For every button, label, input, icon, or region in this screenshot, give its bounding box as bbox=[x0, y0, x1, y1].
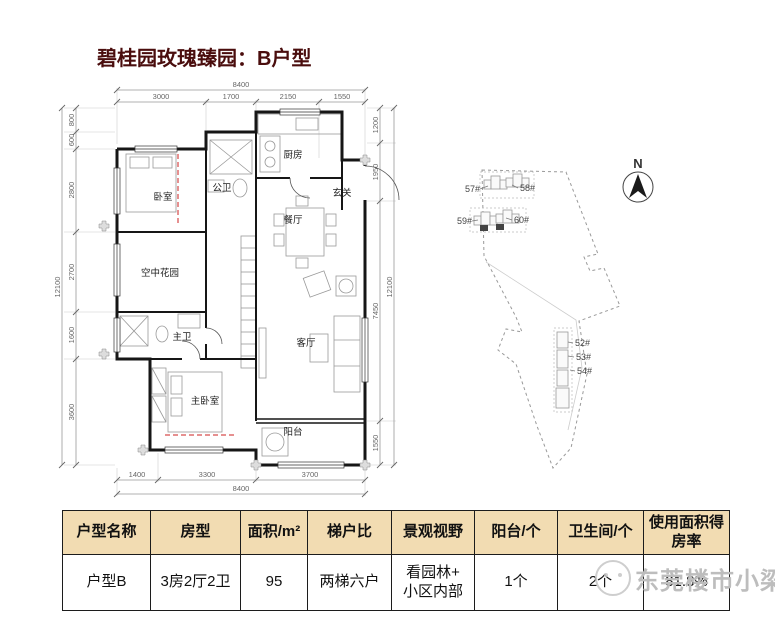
building-label-60: 60# bbox=[514, 215, 529, 225]
dim-top-total: 8400 bbox=[233, 80, 250, 89]
room-label-sky-garden: 空中花园 bbox=[141, 267, 179, 279]
dim-left-2: 2800 bbox=[67, 182, 76, 199]
watermark-text: 东莞楼市小梁 bbox=[635, 561, 775, 596]
watermark: 东莞楼市小梁 bbox=[595, 560, 775, 596]
dim-top-3: 1550 bbox=[334, 92, 351, 101]
cell-balcony: 1个 bbox=[475, 555, 558, 611]
room-label-living: 客厅 bbox=[296, 337, 316, 349]
dim-left-total: 12100 bbox=[53, 277, 62, 298]
header-unit-name: 户型名称 bbox=[63, 511, 151, 555]
floor-plan-drawing: 8400 3000 1700 2150 1550 1400 3300 3700 … bbox=[40, 78, 440, 510]
dim-bottom-1: 3300 bbox=[199, 470, 216, 479]
room-label-master-bath: 主卫 bbox=[172, 331, 192, 343]
dim-left-0: 800 bbox=[67, 114, 76, 127]
dim-left-1: 600 bbox=[67, 134, 76, 147]
dim-top-0: 3000 bbox=[153, 92, 170, 101]
header-usable-ratio: 使用面积得房率 bbox=[644, 511, 730, 555]
header-balcony: 阳台/个 bbox=[475, 511, 558, 555]
building-label-54: 54# bbox=[577, 366, 592, 376]
building-label-53: 53# bbox=[576, 352, 591, 362]
room-label-balcony: 阳台 bbox=[283, 426, 302, 438]
dim-top-2: 2150 bbox=[280, 92, 297, 101]
watermark-logo-icon bbox=[595, 560, 631, 596]
dim-left-5: 3600 bbox=[67, 404, 76, 421]
cell-area: 95 bbox=[241, 555, 308, 611]
site-plan-drawing: 57# 58# 59# 60# 52# 53# 54# N bbox=[440, 130, 750, 500]
compass: N bbox=[623, 156, 653, 202]
room-label-dining: 餐厅 bbox=[283, 214, 303, 226]
room-label-bedroom: 卧室 bbox=[153, 191, 172, 203]
room-label-entry: 玄关 bbox=[332, 187, 352, 199]
header-area: 面积/m² bbox=[241, 511, 308, 555]
dim-right-3: 1550 bbox=[371, 435, 380, 452]
cell-layout: 3房2厅2卫 bbox=[151, 555, 241, 611]
dim-bottom-total: 8400 bbox=[233, 484, 250, 493]
building-label-58: 58# bbox=[520, 183, 535, 193]
header-elevator-ratio: 梯户比 bbox=[308, 511, 392, 555]
dim-right-total: 12100 bbox=[385, 277, 394, 298]
header-bathroom: 卫生间/个 bbox=[558, 511, 644, 555]
page-title: 碧桂园玫瑰臻园：B户型 bbox=[97, 42, 311, 71]
building-label-59: 59# bbox=[457, 216, 472, 226]
north-label: N bbox=[633, 156, 642, 171]
room-label-master-bedroom: 主卧室 bbox=[191, 395, 220, 407]
building-label-52: 52# bbox=[575, 338, 590, 348]
dim-bottom-0: 1400 bbox=[129, 470, 146, 479]
dim-left-4: 1600 bbox=[67, 327, 76, 344]
cell-elevator-ratio: 两梯六户 bbox=[308, 555, 392, 611]
red-dash-lines bbox=[165, 154, 234, 435]
dim-right-0: 1200 bbox=[371, 117, 380, 134]
dim-right-2: 7450 bbox=[371, 303, 380, 320]
room-label-public-bath: 公卫 bbox=[212, 183, 232, 194]
header-view: 景观视野 bbox=[392, 511, 475, 555]
furniture bbox=[120, 114, 360, 456]
room-label-kitchen: 厨房 bbox=[283, 149, 302, 161]
cell-view: 看园林+ 小区内部 bbox=[392, 555, 475, 611]
dim-left-3: 2700 bbox=[67, 264, 76, 281]
building-label-57: 57# bbox=[465, 184, 480, 194]
dimension-ticks bbox=[59, 87, 397, 497]
dimension-lines bbox=[62, 90, 394, 494]
dim-right-1: 1950 bbox=[371, 164, 380, 181]
building-footprints bbox=[474, 174, 569, 408]
dim-bottom-2: 3700 bbox=[302, 470, 319, 479]
header-layout: 房型 bbox=[151, 511, 241, 555]
cell-unit-name: 户型B bbox=[63, 555, 151, 611]
dim-top-1: 1700 bbox=[223, 92, 240, 101]
spec-header-row: 户型名称 房型 面积/m² 梯户比 景观视野 阳台/个 卫生间/个 使用面积得房… bbox=[63, 511, 730, 555]
